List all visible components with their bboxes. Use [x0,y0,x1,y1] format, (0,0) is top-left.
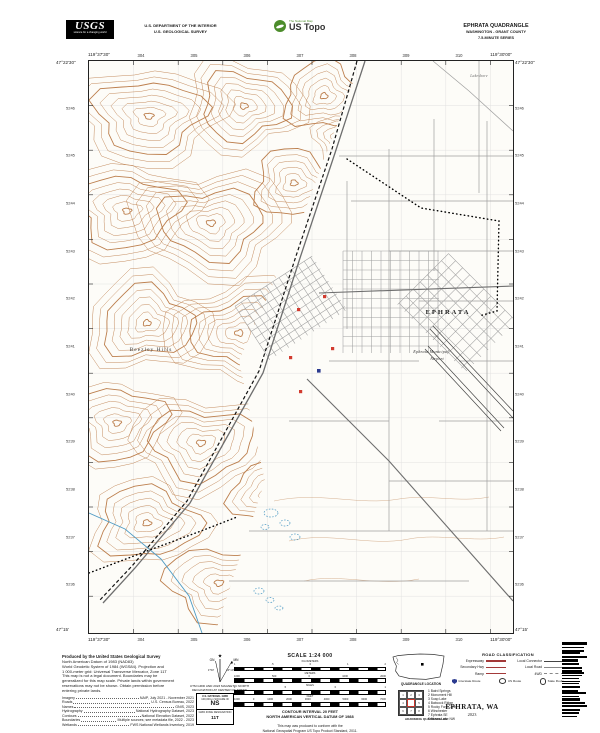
barcode-bar [562,647,584,649]
barcode-bar [562,672,584,674]
state-locator-map [390,652,448,682]
road-classification-title: ROAD CLASSIFICATION [452,652,564,657]
barcode-bar [562,659,578,662]
adjoining-quads-caption: ADJOINING QUADRANGLES [382,717,470,721]
northing-label: 5236 [515,582,524,587]
road-class-sample [544,661,564,662]
map-label: Ephrata Municipal [412,349,449,354]
scale-tick: 7000 [380,699,386,702]
road-class-row: Ramp4WD [452,672,564,676]
northing-label: 5245 [515,153,524,158]
scale-tick: 1000 [342,676,348,679]
barcode-bar [562,709,580,711]
route-shield-entry: State Route [540,678,564,685]
scale-bar-row: MILES1.501 [234,685,386,695]
scale-title: SCALE 1:24 000 [228,653,392,659]
northing-label: 5243 [515,248,524,253]
northing-label: 5242 [515,296,524,301]
northing-label: 5241 [66,344,75,349]
road-class-label: Ramp [452,672,484,676]
northing-label: 5239 [515,439,524,444]
road-class-entry: Secondary Hwy [452,665,506,669]
barcode-bar [562,696,579,697]
easting-label: 309 [403,53,410,58]
scale-tick: 1 [234,687,235,690]
map-label: Beezley Hills [130,347,173,353]
utm-northing-labels-right: 5246524552445243524252415240523952385237… [515,60,531,632]
scale-bars: KILOMETERS1.5012METERS1000500010002000MI… [228,661,392,707]
barcode-bar [562,681,580,682]
scale-tick: 6000 [361,699,367,702]
usgs-topo-sheet: { "header": { "logo": {"name": "USGS", "… [0,0,600,725]
northing-label: 5237 [66,534,75,539]
landmark-building [289,356,292,359]
northing-label: 5246 [515,105,524,110]
scale-tick: 5000 [343,699,349,702]
ustopo-logo: The National Map US Topo [274,20,325,32]
scale-bar [234,667,386,672]
adjoining-quad-cell: 2 [407,691,415,699]
road-class-entry: Local Connector [510,659,564,663]
road-class-entry: Expressway [452,659,506,663]
barcode-bar [562,712,579,714]
scale-tick: 4000 [324,699,330,702]
northing-label: 5245 [66,153,75,158]
scale-bar-row: KILOMETERS1.5012 [234,661,386,671]
northing-label: 5237 [515,534,524,539]
road-class-row: ExpresswayLocal Connector [452,659,564,663]
barcode-bar [562,702,585,704]
route-shield-label: US Route [508,679,521,683]
landmark-building [297,308,300,311]
ustopo-globe-icon [274,20,286,32]
road-class-label: Expressway [452,659,484,663]
scale-tick: 1000 [234,676,240,679]
scale-tick: 3000 [305,699,311,702]
easting-label: 308 [350,53,357,58]
northing-label: 5246 [66,105,75,110]
scale-bar-row: METERS1000500010002000 [234,673,386,683]
northing-label: 5238 [66,487,75,492]
northing-label: 5240 [66,391,75,396]
easting-label: 310 [456,53,463,58]
us-shield-icon [499,678,507,684]
sheet-name: EPHRATA, WA [416,703,528,711]
adjoining-quad-cell: 7 [407,707,415,715]
department-line2: U.S. GEOLOGICAL SURVEY [118,29,243,35]
northing-label: 5244 [515,201,524,206]
adjoining-quad-cell: 4 [399,699,407,707]
road-class-sample [486,667,506,668]
easting-label: 306 [244,637,251,642]
map-label: EPHRATA [426,309,471,316]
northing-label: 5242 [66,296,75,301]
quadrangle-series: 7.5-MINUTE SERIES [398,36,594,42]
road-class-entry: 4WD [510,672,564,676]
easting-label: 306 [244,53,251,58]
route-shield-legend: Interstate RouteUS RouteState Route [452,678,564,685]
road-class-entry: Local Road [510,665,564,669]
easting-label: 308 [350,637,357,642]
dotted-leader [74,705,174,708]
grid-north-label: GN [210,658,215,662]
route-shield-entry: Interstate Route [452,679,481,684]
landmark-building [299,390,302,393]
barcode-bar [562,692,586,694]
road-class-row: Secondary HwyLocal Road [452,665,564,669]
road-class-label: 4WD [510,672,542,676]
scale-tick: 500 [272,676,276,679]
ustopo-brand: US Topo [289,23,325,32]
easting-label: 307 [297,53,304,58]
scale-bar-row: FEET100001000200030004000500060007000 [234,696,386,706]
sheet-year: 2023 [416,712,528,717]
scale-tick: 0 [310,664,311,667]
scale-tick: 2 [385,664,386,667]
scale-tick: .5 [284,687,286,690]
scale-tick: 1000 [267,699,273,702]
barcode-bar [562,642,587,645]
road-class-label: Secondary Hwy [452,665,484,669]
quad-location-marker [421,663,424,666]
scale-block: SCALE 1:24 000 KILOMETERS1.5012METERS100… [228,653,392,733]
scale-tick: 1 [385,687,386,690]
map-label: Lakeshore [469,74,488,78]
data-sources-list: ImageryNAIP, July 2021 - November 2021Ro… [62,696,194,727]
dotted-leader [84,710,135,713]
barcode-bar [562,675,582,676]
barcode-bar [562,663,579,665]
road-class-entry: Ramp [452,672,506,676]
adjoining-quad-cell: 6 [399,707,407,715]
landmark-building [323,295,326,298]
scale-tick: 2000 [380,676,386,679]
road-class-sample [486,673,506,674]
true-north-star: ★ [218,654,223,660]
barcode-bar [562,678,579,679]
usgs-logo: USGS science for a changing world [66,20,114,39]
scale-tick: 2000 [286,699,292,702]
easting-label: 309 [403,637,410,642]
scale-tick: 0 [253,699,254,702]
landmark-building-blue [317,369,321,373]
barcode-bar [562,716,577,718]
barcode-bar [562,652,580,654]
northing-label: 5236 [66,582,75,587]
sheet-barcode [562,642,587,718]
route-shield-entry: US Route [499,678,521,684]
easting-label: 305 [191,53,198,58]
easting-label: 304 [138,53,145,58]
contour-interval-note: CONTOUR INTERVAL 20 FEET NORTH AMERICAN … [228,709,392,720]
quadrangle-title-block: EPHRATA QUADRANGLE WASHINGTON - GRANT CO… [398,22,594,41]
scale-bar [234,702,386,707]
sheet-title-block: EPHRATA, WA 2023 [416,703,528,717]
standard-line2: National Geospatial Program US Topo Prod… [228,729,392,733]
utm-easting-labels-top: 304305306307308309310 [88,53,512,59]
quadrangle-location-caption: QUADRANGLE LOCATION [384,682,458,686]
barcode-bar [562,683,579,684]
road-class-sample [486,660,506,662]
adjoining-quad-cell: 1 [399,691,407,699]
scale-bar [234,678,386,683]
this-quad-cell [407,699,415,707]
utm-easting-labels-bottom: 304305306307308309310 [88,637,512,643]
topo-map: EPHRATABeezley HillsEphrata MunicipalAir… [89,61,513,633]
barcode-bar [562,656,587,658]
dotted-leader [76,696,139,699]
scale-tick: 1 [347,664,348,667]
scale-tick: .5 [271,664,273,667]
grid-north-value: 1°53' [208,668,215,672]
scale-tick: 1000 [234,699,240,702]
barcode-bar [562,705,587,707]
scale-tick: 0 [309,676,310,679]
easting-label: 307 [297,637,304,642]
road-class-sample [544,673,564,674]
easting-label: 304 [138,637,145,642]
barcode-bar [562,698,580,701]
dotted-leader [73,701,150,704]
interstate-shield-icon [452,679,457,684]
standard-note: This map was produced to conform with th… [228,724,392,733]
dotted-leader [81,719,116,722]
northing-label: 5240 [515,391,524,396]
utm-northing-labels-left: 5246524552445243524252415240523952385237… [66,60,82,632]
easting-label: 305 [191,637,198,642]
barcode-bar [562,686,580,688]
northing-label: 5241 [515,344,524,349]
map-canvas: EPHRATABeezley HillsEphrata MunicipalAir… [88,60,514,634]
barcode-bar [562,667,582,669]
dotted-leader [78,714,141,717]
road-class-label: Local Connector [510,659,542,663]
northing-label: 5239 [66,439,75,444]
route-shield-label: Interstate Route [459,679,481,683]
usgs-logo-tagline: science for a changing world [66,32,114,35]
scale-tick: 1 [234,664,235,667]
road-class-label: Local Road [510,665,542,669]
map-label: Airport [429,356,444,361]
northing-label: 5243 [66,248,75,253]
adjoining-quad-cell: 3 [415,691,423,699]
road-classification-legend: ROAD CLASSIFICATION ExpresswayLocal Conn… [452,652,564,685]
road-class-sample [544,667,564,668]
northing-label: 5238 [515,487,524,492]
vertical-datum-line: NORTH AMERICAN VERTICAL DATUM OF 1988 [228,714,392,720]
department-heading: U.S. DEPARTMENT OF THE INTERIOR U.S. GEO… [118,23,243,35]
landmark-building [331,347,334,350]
state-shield-icon [540,678,547,685]
northing-label: 5244 [66,201,75,206]
road-classification-rows: ExpresswayLocal ConnectorSecondary HwyLo… [452,659,564,676]
scale-tick: 0 [335,687,336,690]
easting-label: 310 [456,637,463,642]
quadrangle-title: EPHRATA QUADRANGLE [398,22,594,30]
